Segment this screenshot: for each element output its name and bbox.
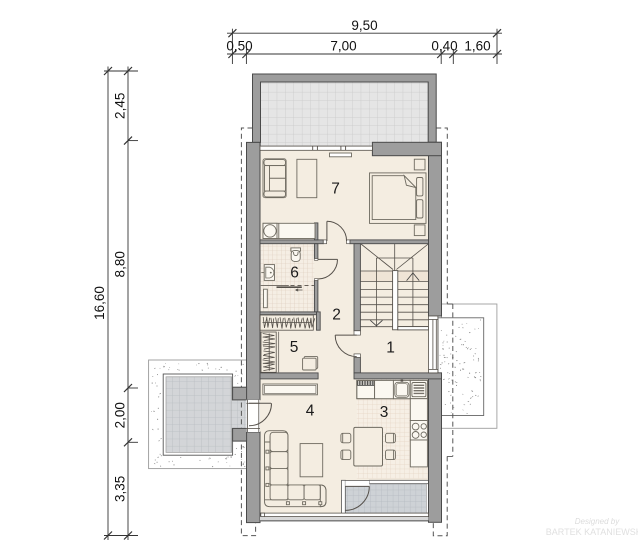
svg-text:4: 4 (306, 403, 315, 420)
svg-text:5: 5 (290, 339, 299, 356)
svg-text:6: 6 (290, 265, 299, 282)
svg-text:3,35: 3,35 (113, 476, 128, 502)
svg-text:1: 1 (386, 340, 395, 357)
svg-text:7,00: 7,00 (330, 38, 356, 53)
svg-text:2,45: 2,45 (113, 93, 128, 119)
svg-text:Designed by: Designed by (575, 517, 620, 526)
svg-text:7: 7 (331, 181, 340, 198)
svg-text:1,60: 1,60 (464, 38, 490, 53)
svg-text:3: 3 (380, 404, 389, 421)
svg-text:2: 2 (332, 307, 341, 324)
svg-text:0,50: 0,50 (226, 38, 252, 53)
svg-text:2,00: 2,00 (113, 402, 128, 428)
svg-text:8,80: 8,80 (113, 251, 128, 277)
svg-text:9,50: 9,50 (351, 18, 377, 33)
svg-text:BARTEK KATANIEWSKI: BARTEK KATANIEWSKI (546, 527, 638, 537)
svg-text:0,40: 0,40 (431, 38, 457, 53)
svg-text:16,60: 16,60 (92, 286, 107, 320)
